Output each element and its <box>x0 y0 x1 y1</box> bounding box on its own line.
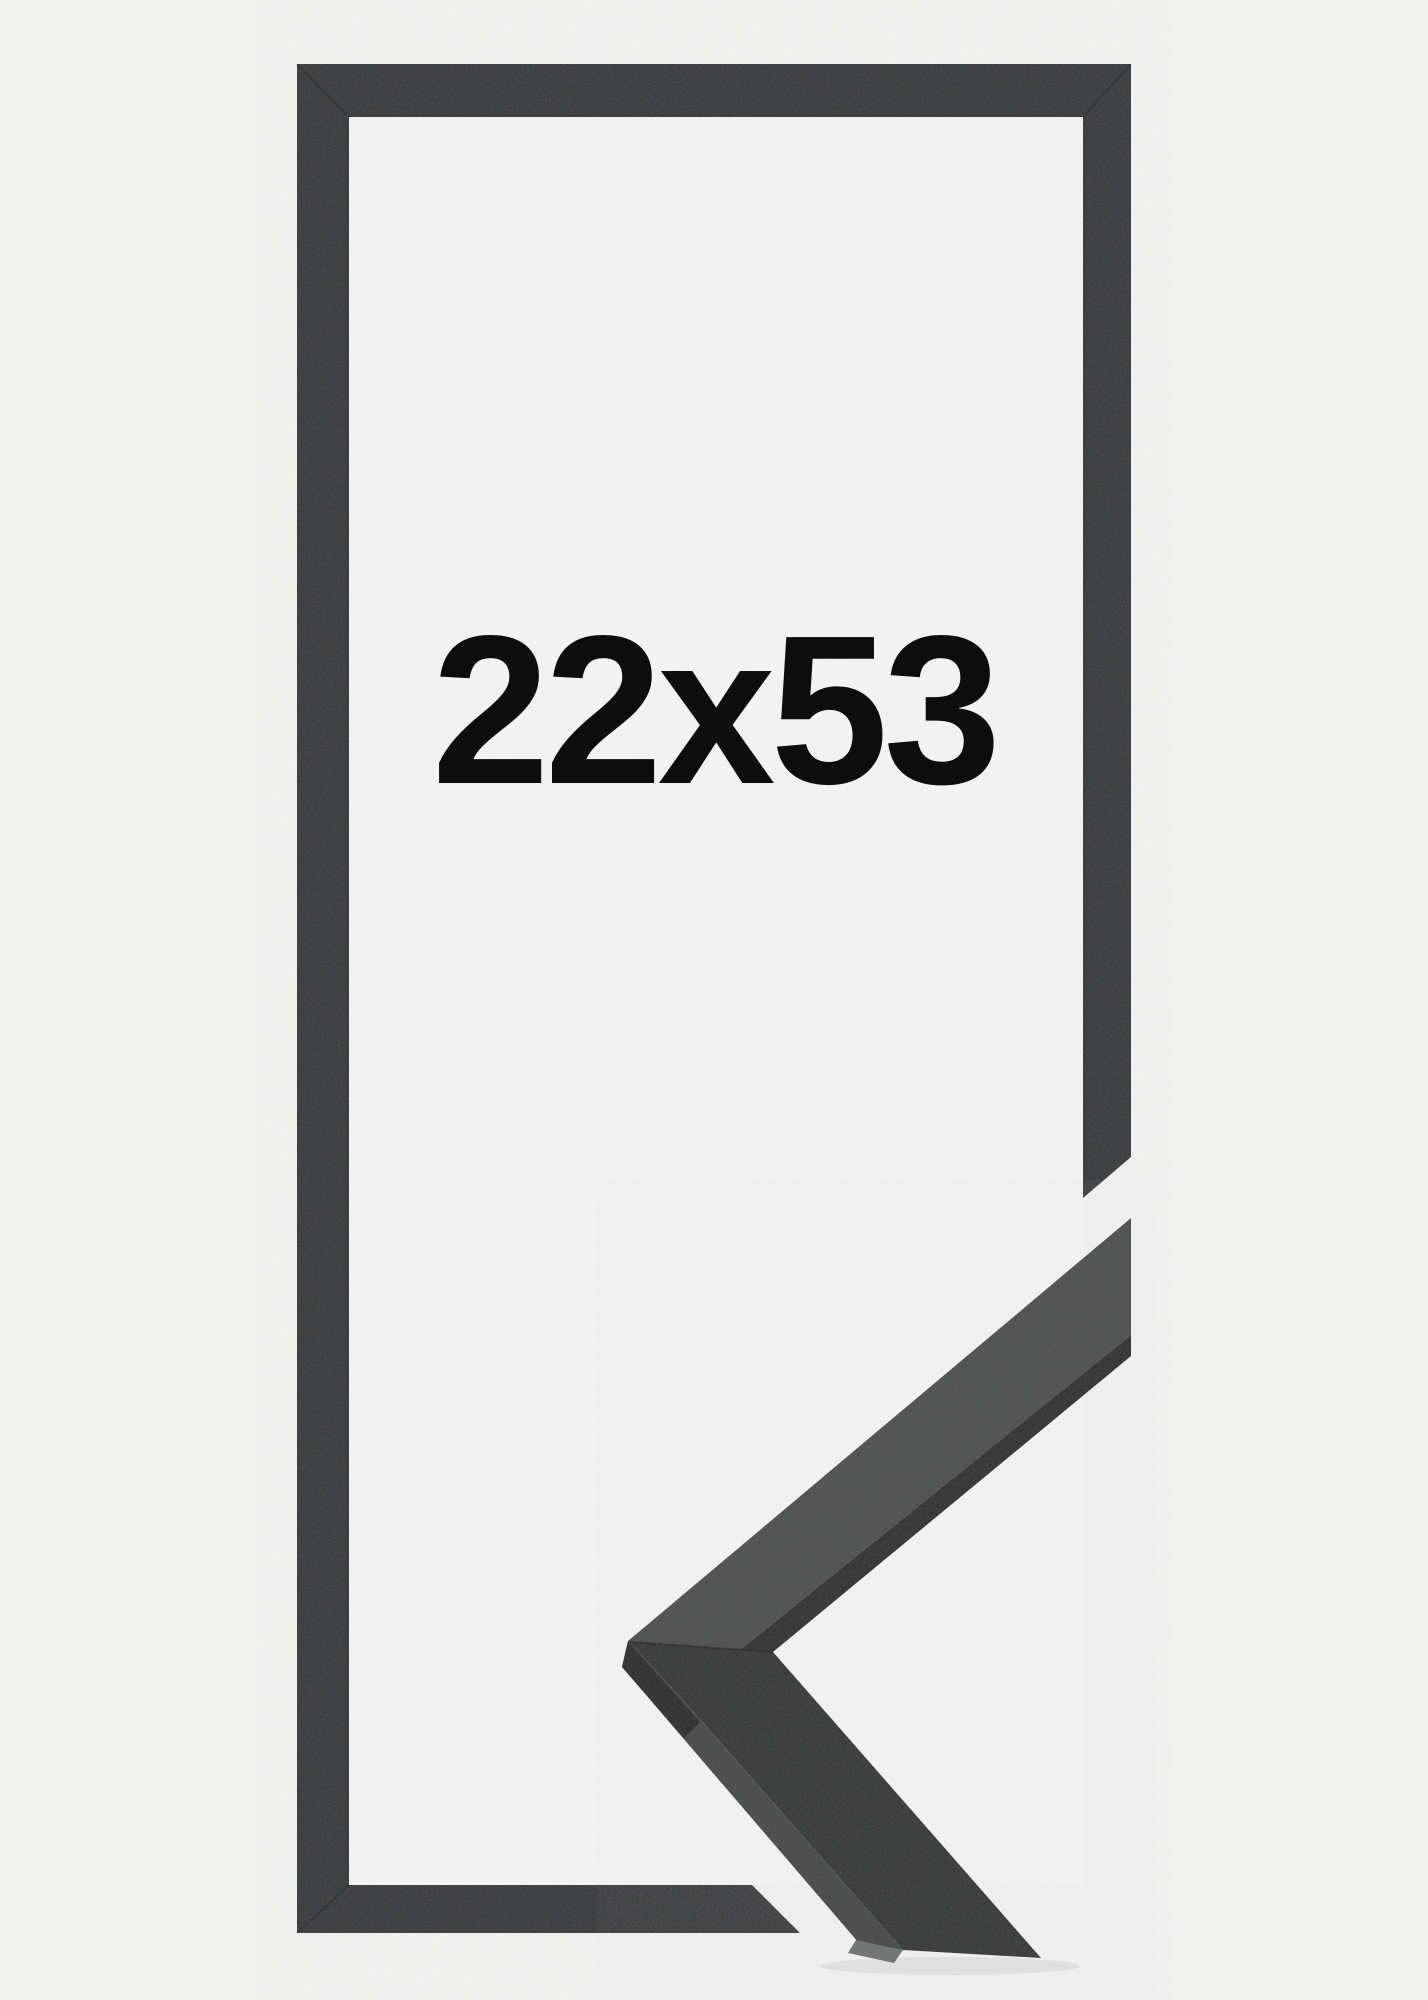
size-label: 22x53 <box>432 591 997 828</box>
sample-shadow <box>820 1957 1080 1975</box>
product-image: 22x53 <box>0 0 1428 2000</box>
product-photo-canvas: 22x53 <box>0 0 1428 2000</box>
